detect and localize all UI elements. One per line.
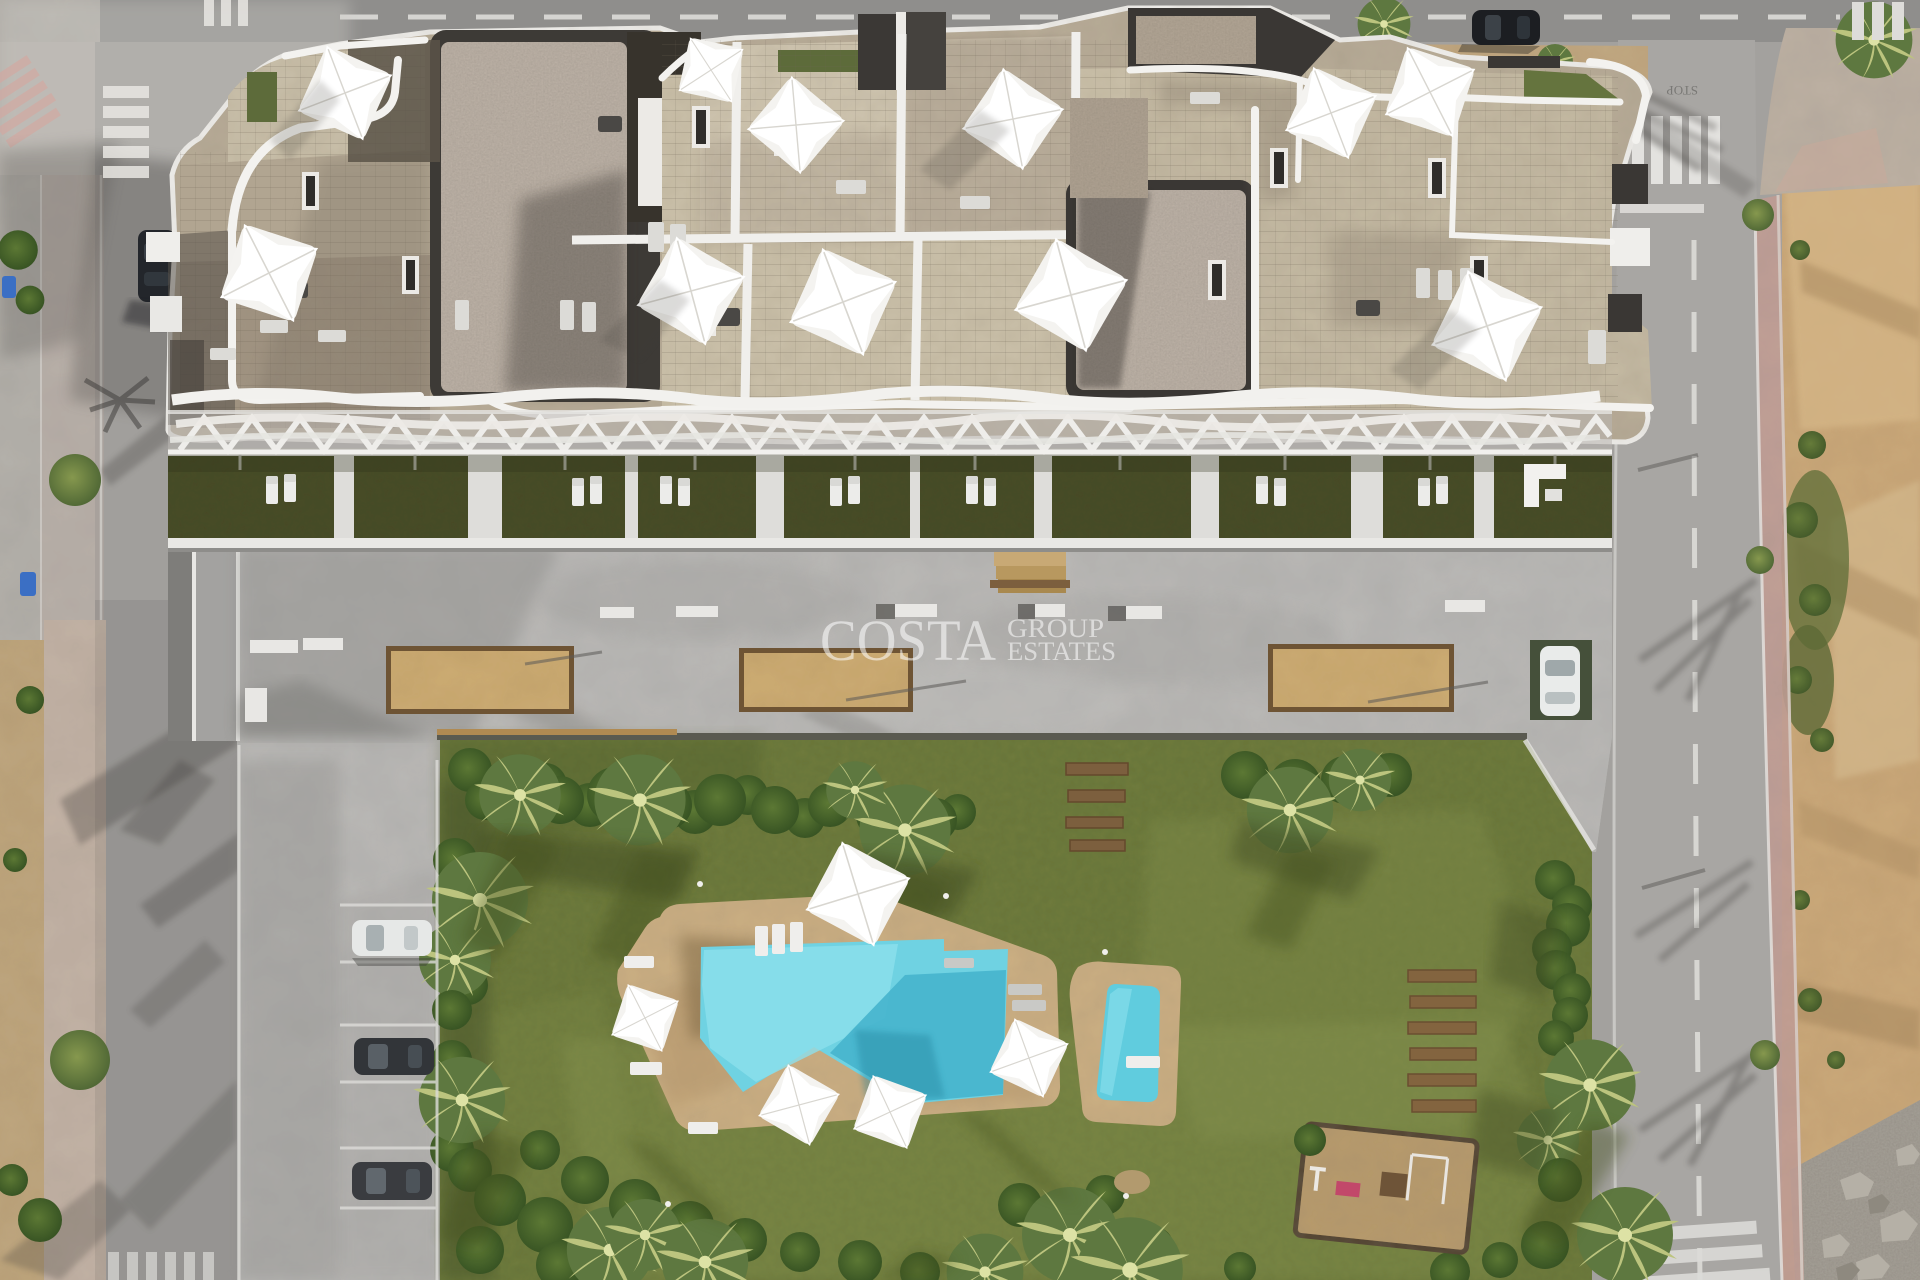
svg-text:ESTATES: ESTATES bbox=[1007, 637, 1116, 666]
svg-text:STOP: STOP bbox=[1666, 83, 1698, 98]
svg-text:COSTA: COSTA bbox=[820, 608, 996, 673]
